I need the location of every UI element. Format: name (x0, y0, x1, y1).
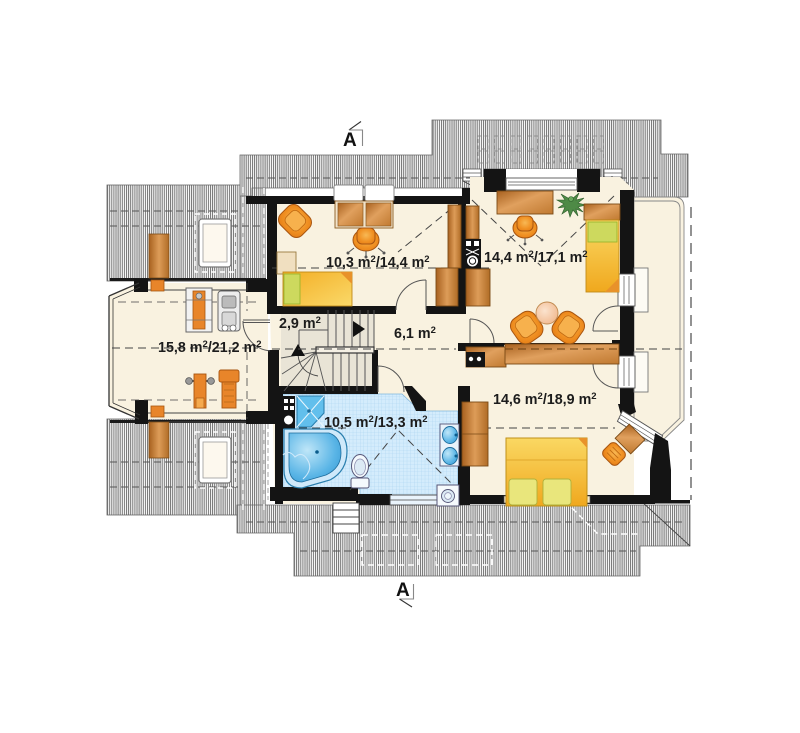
svg-text:10,5 m2/13,3 m2: 10,5 m2/13,3 m2 (324, 414, 428, 431)
svg-text:A: A (396, 580, 410, 601)
svg-text:15,8 m2/21,2 m2: 15,8 m2/21,2 m2 (158, 339, 262, 356)
svg-text:14,6 m2/18,9 m2: 14,6 m2/18,9 m2 (493, 391, 597, 408)
svg-text:10,3 m2/14,4 m2: 10,3 m2/14,4 m2 (326, 254, 430, 271)
svg-text:6,1 m2: 6,1 m2 (394, 325, 436, 342)
svg-text:A: A (343, 130, 357, 151)
svg-text:14,4 m2/17,1 m2: 14,4 m2/17,1 m2 (484, 249, 588, 266)
svg-text:2,9 m2: 2,9 m2 (279, 315, 321, 332)
